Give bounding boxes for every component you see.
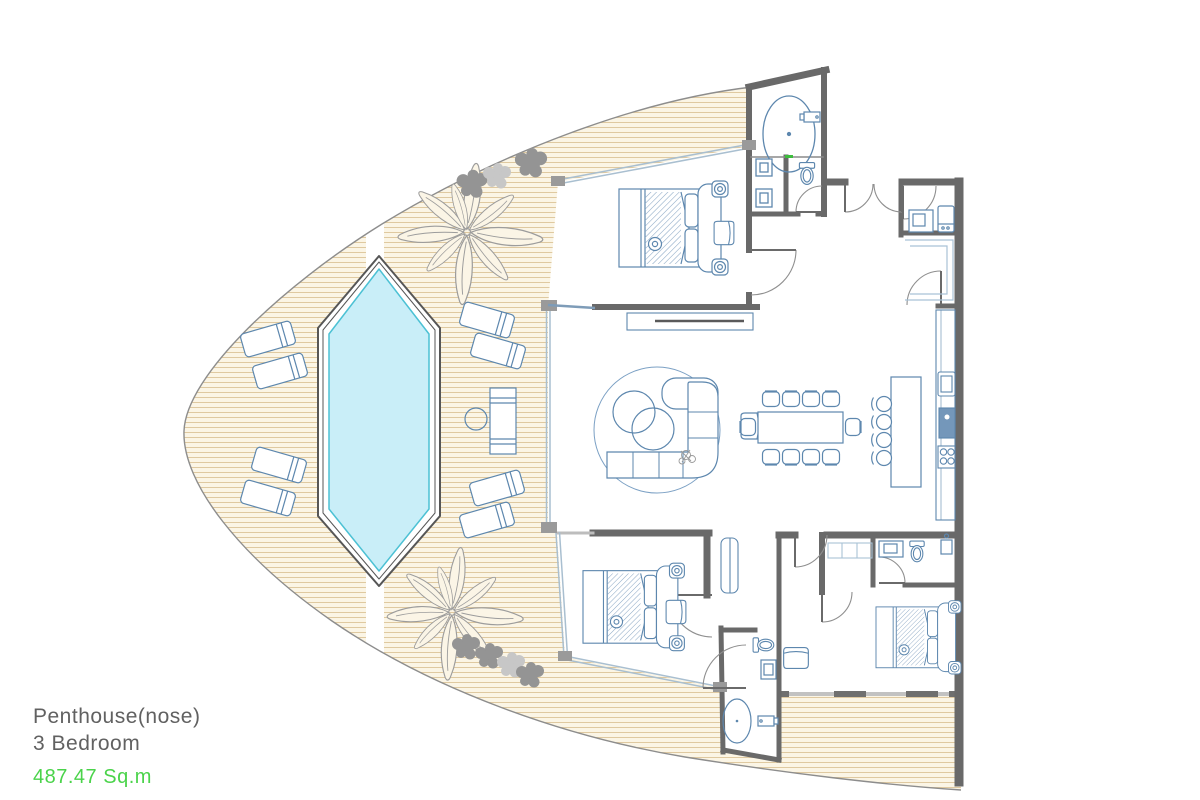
utility-room [909, 206, 954, 232]
toilet [753, 638, 774, 652]
tv-console [627, 313, 753, 330]
dining-chair [823, 450, 840, 465]
dining-chair [823, 392, 840, 407]
dining-table [758, 412, 843, 443]
pool-walkway-bottom [366, 572, 384, 660]
wardrobe [721, 538, 738, 593]
wall-sink [800, 112, 820, 122]
dining-chair [783, 392, 800, 407]
dining-chair [763, 450, 780, 465]
bed [619, 181, 728, 275]
bed [876, 601, 961, 674]
kitchen-counter [936, 310, 955, 520]
floor-plan: Penthouse(nose) 3 Bedroom 487.47 Sq.m [0, 0, 1200, 800]
dining-chair [803, 450, 820, 465]
dining-chair [763, 392, 780, 407]
swimming-pool [318, 256, 440, 586]
dryer [938, 206, 954, 232]
dining-chair [741, 419, 756, 436]
pool-water [329, 269, 429, 571]
plan-labels: Penthouse(nose) 3 Bedroom 487.47 Sq.m [33, 705, 200, 788]
plan-area: 487.47 Sq.m [33, 766, 152, 788]
bedroom-chair [784, 648, 809, 669]
bedroom-1 [619, 181, 734, 275]
bedroom-chair [714, 221, 734, 244]
kitchen-sink [939, 408, 955, 438]
plan-subtitle: 3 Bedroom [33, 732, 140, 755]
dining-chair [783, 450, 800, 465]
dining-chair [803, 392, 820, 407]
plan-title: Penthouse(nose) [33, 705, 200, 728]
fixture [941, 540, 952, 554]
toilet [799, 163, 814, 185]
dining-chair [846, 419, 861, 436]
floor-plan-page: Penthouse(nose) 3 Bedroom 487.47 Sq.m [0, 0, 1200, 800]
bedroom-chair [666, 600, 686, 623]
toilet [910, 541, 924, 562]
threshold-mark [785, 155, 793, 158]
wall-sink [758, 716, 778, 726]
